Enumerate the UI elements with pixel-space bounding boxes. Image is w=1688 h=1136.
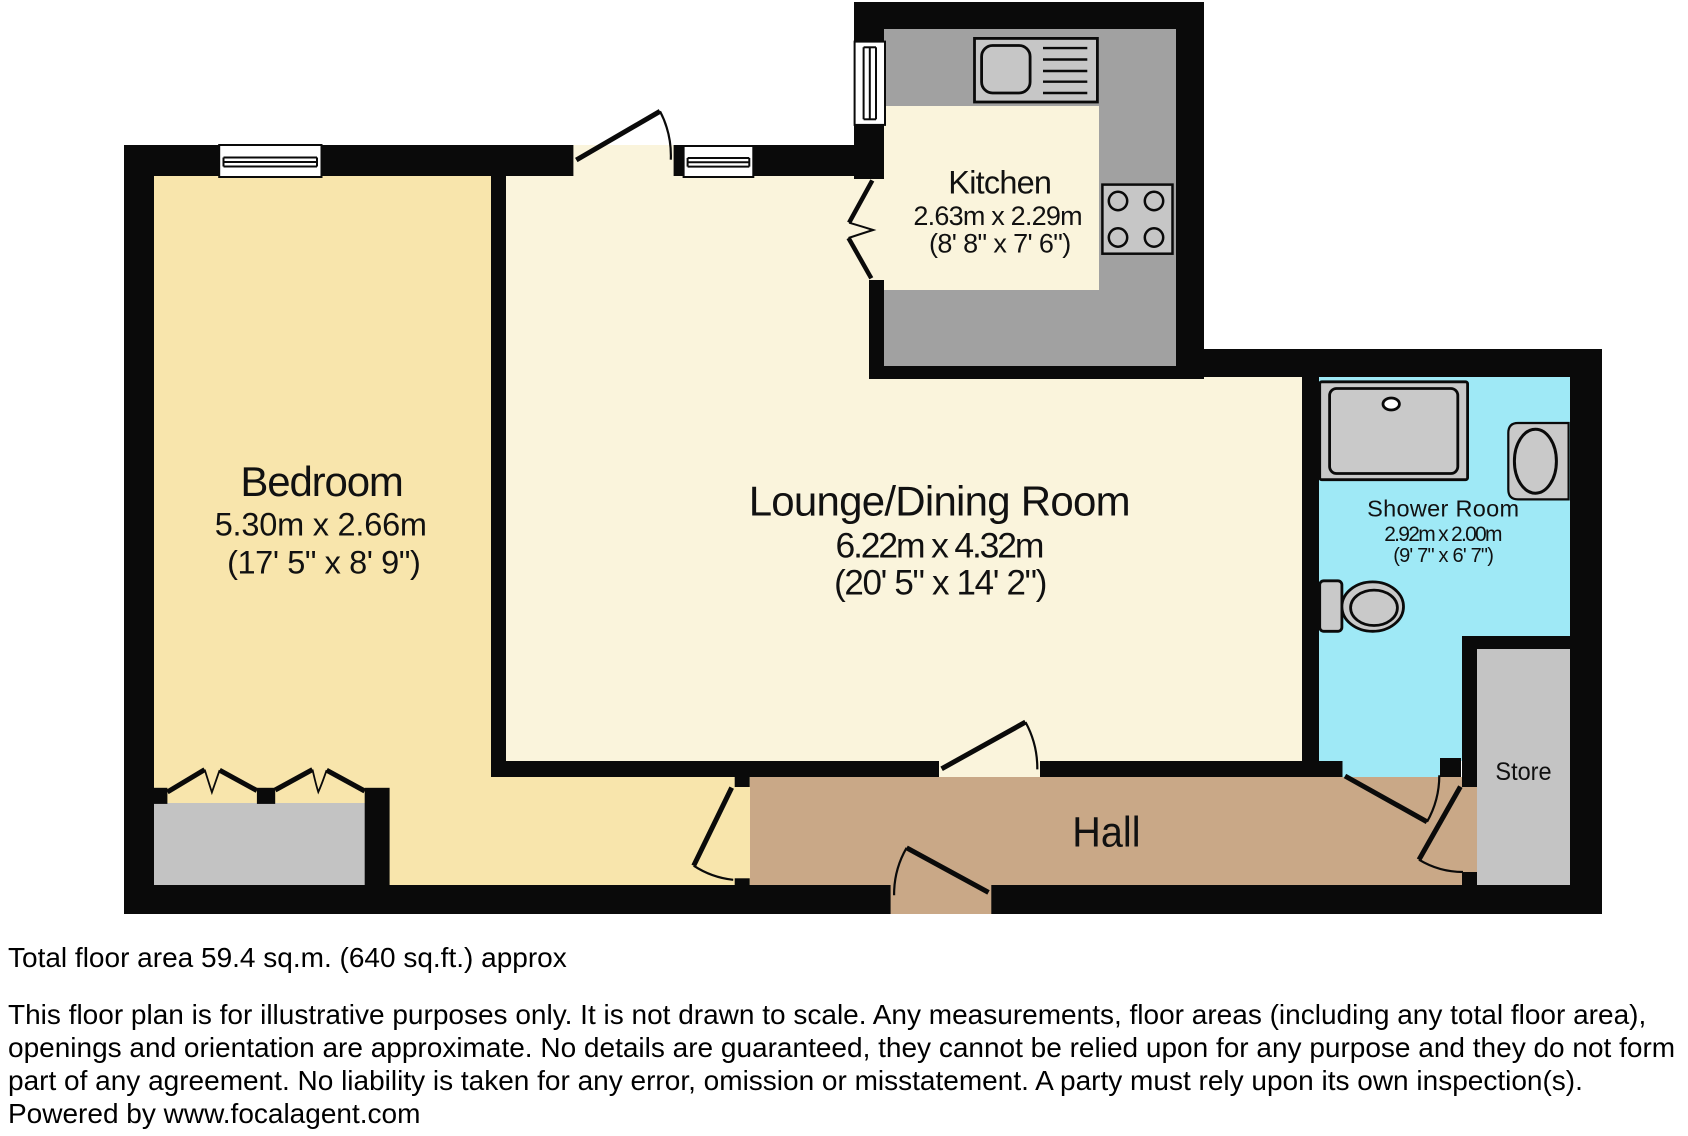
svg-text:6.22m x 4.32m: 6.22m x 4.32m: [836, 526, 1045, 566]
svg-text:Hall: Hall: [1072, 809, 1140, 857]
svg-text:2.63m x 2.29m: 2.63m x 2.29m: [913, 201, 1082, 231]
svg-text:Kitchen: Kitchen: [948, 165, 1052, 201]
svg-text:5.30m x 2.66m: 5.30m x 2.66m: [215, 507, 427, 543]
svg-text:Powered by www.focalagent.com: Powered by www.focalagent.com: [8, 1098, 420, 1129]
svg-text:openings and orientation are a: openings and orientation are approximate…: [8, 1032, 1675, 1063]
svg-text:(8' 8" x 7' 6"): (8' 8" x 7' 6"): [929, 229, 1071, 259]
svg-text:part of any agreement. No liab: part of any agreement. No liability is t…: [8, 1065, 1583, 1096]
svg-text:Shower Room: Shower Room: [1367, 496, 1519, 522]
svg-text:Total floor area 59.4 sq.m. (6: Total floor area 59.4 sq.m. (640 sq.ft.)…: [8, 942, 567, 973]
svg-text:2.92m x 2.00m: 2.92m x 2.00m: [1384, 523, 1502, 546]
svg-text:Bedroom: Bedroom: [240, 458, 404, 505]
svg-text:(17' 5" x 8' 9"): (17' 5" x 8' 9"): [227, 545, 421, 581]
svg-text:This floor plan is for illustr: This floor plan is for illustrative purp…: [8, 999, 1646, 1030]
svg-text:Lounge/Dining Room: Lounge/Dining Room: [749, 478, 1131, 525]
svg-text:(9' 7" x 6' 7"): (9' 7" x 6' 7"): [1393, 545, 1494, 567]
svg-text:Store: Store: [1495, 758, 1551, 786]
svg-text:(20' 5" x 14' 2"): (20' 5" x 14' 2"): [834, 564, 1047, 603]
